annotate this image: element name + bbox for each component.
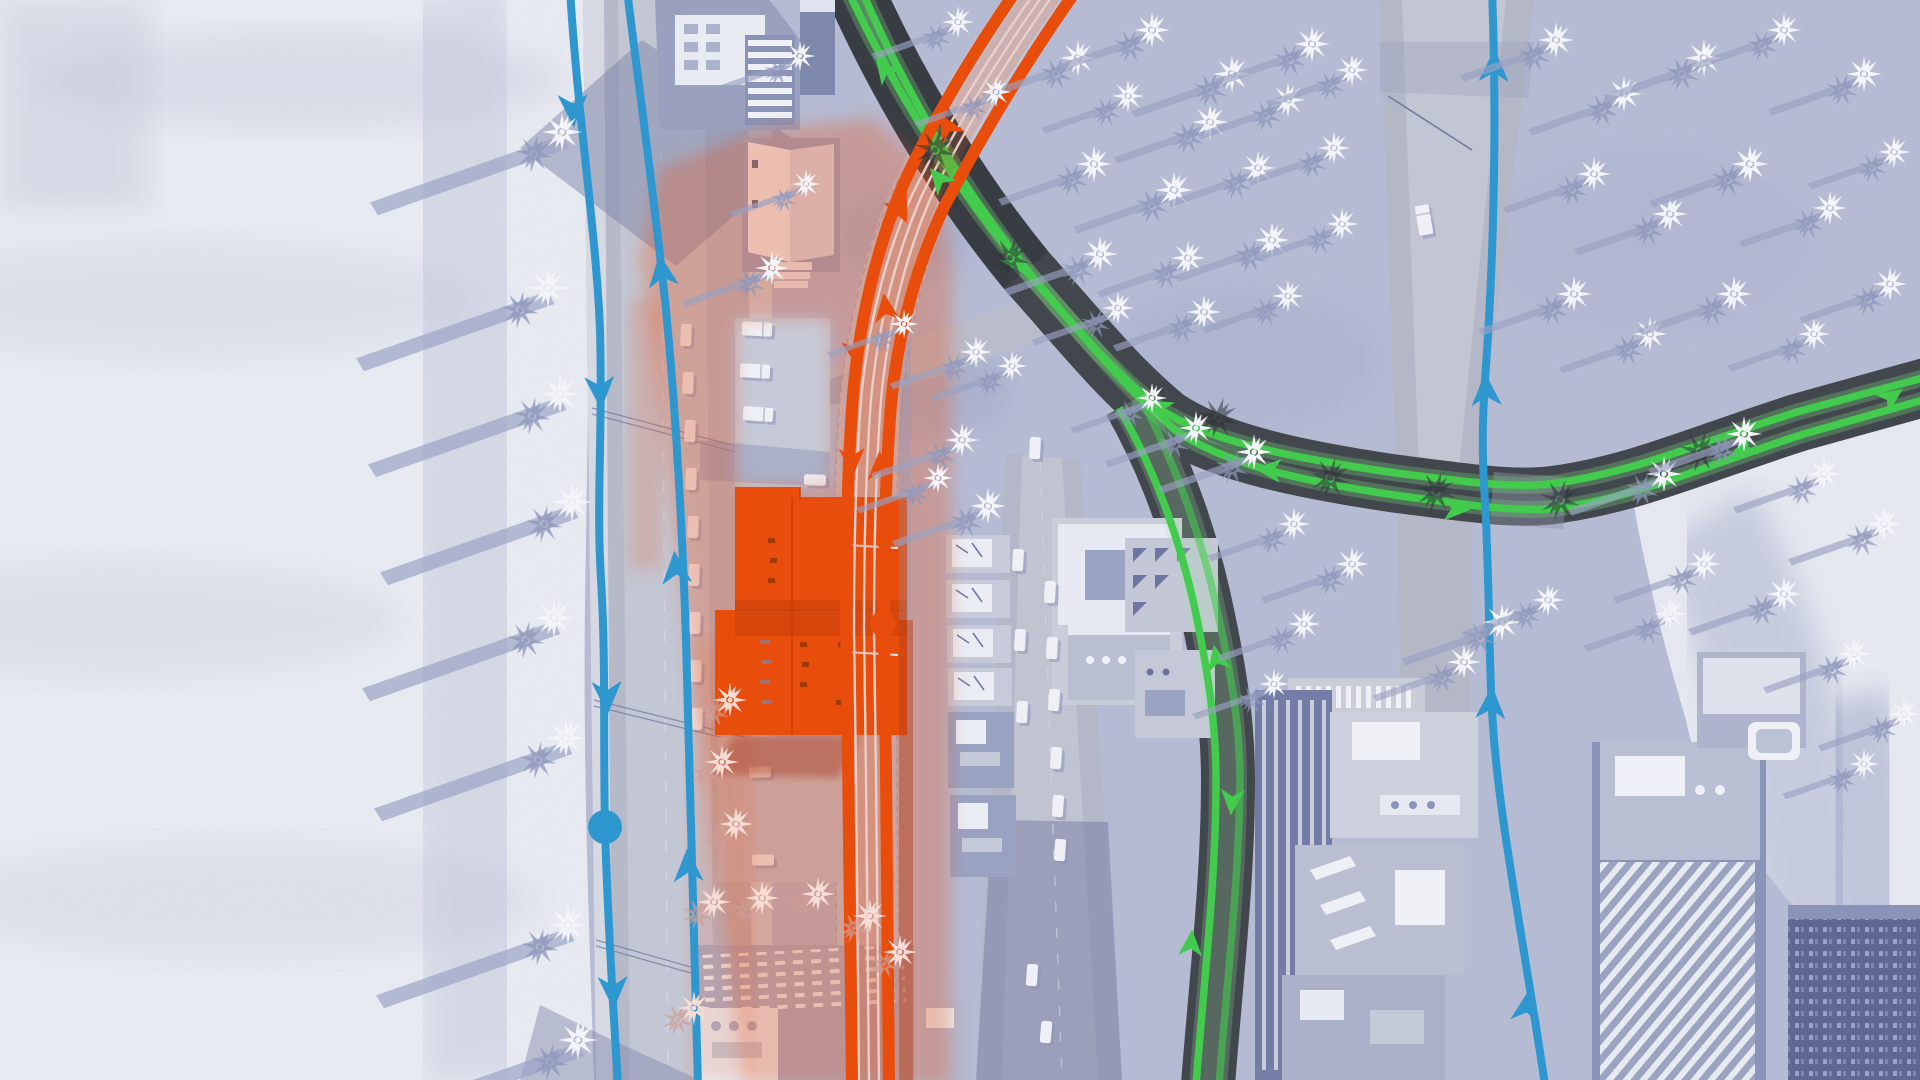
palm-tree-icon xyxy=(942,6,974,38)
palm-tree-icon xyxy=(1236,434,1272,470)
palm-tree-icon xyxy=(960,336,992,368)
car-icon xyxy=(1026,964,1039,987)
palm-tree-icon xyxy=(1767,13,1801,47)
truck-icon xyxy=(742,321,773,337)
car-icon xyxy=(1016,701,1028,724)
palm-tree-icon xyxy=(1866,506,1902,542)
palm-tree-icon xyxy=(1076,146,1112,182)
palm-tree-icon xyxy=(1272,280,1304,312)
car-icon xyxy=(1050,747,1063,770)
striped-roof-tower[interactable] xyxy=(1592,742,1766,1080)
palm-tree-icon xyxy=(534,598,574,638)
palm-tree-icon xyxy=(1335,547,1369,581)
palm-tree-icon xyxy=(552,482,592,522)
palm-tree-icon xyxy=(1112,80,1144,112)
truck-icon xyxy=(743,406,774,422)
palm-tree-icon xyxy=(677,991,711,1025)
orange-line-stop[interactable] xyxy=(870,611,896,637)
villa[interactable] xyxy=(1697,652,1806,760)
palm-tree-icon xyxy=(1318,132,1350,164)
palm-tree-icon xyxy=(1873,267,1907,301)
palm-tree-icon xyxy=(705,745,739,779)
office-complex[interactable] xyxy=(1255,690,1478,1080)
palm-tree-icon xyxy=(1731,145,1769,183)
palm-tree-icon xyxy=(1179,411,1213,445)
car-icon xyxy=(1029,437,1041,460)
palm-tree-icon xyxy=(745,881,779,915)
palm-tree-icon xyxy=(1538,22,1574,58)
car-icon xyxy=(1044,581,1056,604)
palm-tree-icon xyxy=(528,268,568,308)
palm-tree-icon xyxy=(1259,669,1290,700)
palm-tree-icon xyxy=(853,899,887,933)
truck-icon xyxy=(740,363,771,379)
palm-tree-icon xyxy=(548,905,588,945)
palm-tree-icon xyxy=(1654,598,1686,630)
palm-tree-icon xyxy=(540,374,580,414)
car-icon xyxy=(804,474,826,486)
car-icon xyxy=(1054,839,1067,862)
palm-tree-icon xyxy=(997,351,1028,382)
game-viewport[interactable] xyxy=(0,0,1920,1080)
palm-tree-icon xyxy=(801,877,835,911)
palm-tree-icon xyxy=(1447,645,1481,679)
palm-tree-icon xyxy=(1577,157,1611,191)
palm-tree-icon xyxy=(1134,12,1170,48)
row-houses[interactable] xyxy=(946,535,1016,877)
palm-tree-icon xyxy=(1766,576,1802,612)
car-icon xyxy=(1052,795,1065,818)
palm-tree-icon xyxy=(1837,637,1871,671)
car-icon xyxy=(1040,1021,1053,1044)
palm-tree-icon xyxy=(558,1020,598,1060)
palm-tree-icon xyxy=(1687,547,1721,581)
palm-tree-icon xyxy=(1326,208,1358,240)
palm-tree-icon xyxy=(713,683,747,717)
blue-line-stop[interactable] xyxy=(588,810,622,844)
palm-tree-icon xyxy=(1278,508,1310,540)
palm-tree-icon xyxy=(1532,584,1564,616)
palm-tree-icon xyxy=(1102,292,1134,324)
palm-tree-icon xyxy=(945,423,979,457)
car-icon xyxy=(1046,637,1058,660)
palm-tree-icon xyxy=(1082,236,1118,272)
palm-tree-icon xyxy=(970,488,1006,524)
palm-tree-icon xyxy=(1846,56,1882,92)
palm-tree-icon xyxy=(1137,383,1168,414)
palm-tree-icon xyxy=(923,463,954,494)
palm-tree-icon xyxy=(1288,608,1320,640)
palm-tree-icon xyxy=(890,310,919,339)
palm-tree-icon xyxy=(1849,749,1880,780)
car-icon xyxy=(1012,549,1024,572)
palm-tree-icon xyxy=(981,77,1012,108)
car-icon xyxy=(1014,629,1026,652)
palm-tree-icon xyxy=(546,718,586,758)
palm-tree-icon xyxy=(1807,457,1841,491)
palm-tree-icon xyxy=(792,170,821,199)
palm-tree-icon xyxy=(719,807,753,841)
palm-tree-icon xyxy=(1336,54,1368,86)
palm-tree-icon xyxy=(1726,416,1762,452)
palm-tree-icon xyxy=(1294,26,1330,62)
dark-tower[interactable] xyxy=(1788,905,1920,1080)
palm-tree-icon xyxy=(1813,191,1847,225)
palm-tree-icon xyxy=(1716,276,1752,312)
palm-tree-icon xyxy=(1556,276,1592,312)
palm-tree-icon xyxy=(697,885,731,919)
palm-tree-icon xyxy=(755,251,789,285)
palm-tree-icon xyxy=(785,41,816,72)
car-icon xyxy=(1048,689,1061,712)
palm-tree-icon xyxy=(883,935,917,969)
palm-tree-icon xyxy=(1878,136,1910,168)
palm-tree-icon xyxy=(542,112,582,152)
